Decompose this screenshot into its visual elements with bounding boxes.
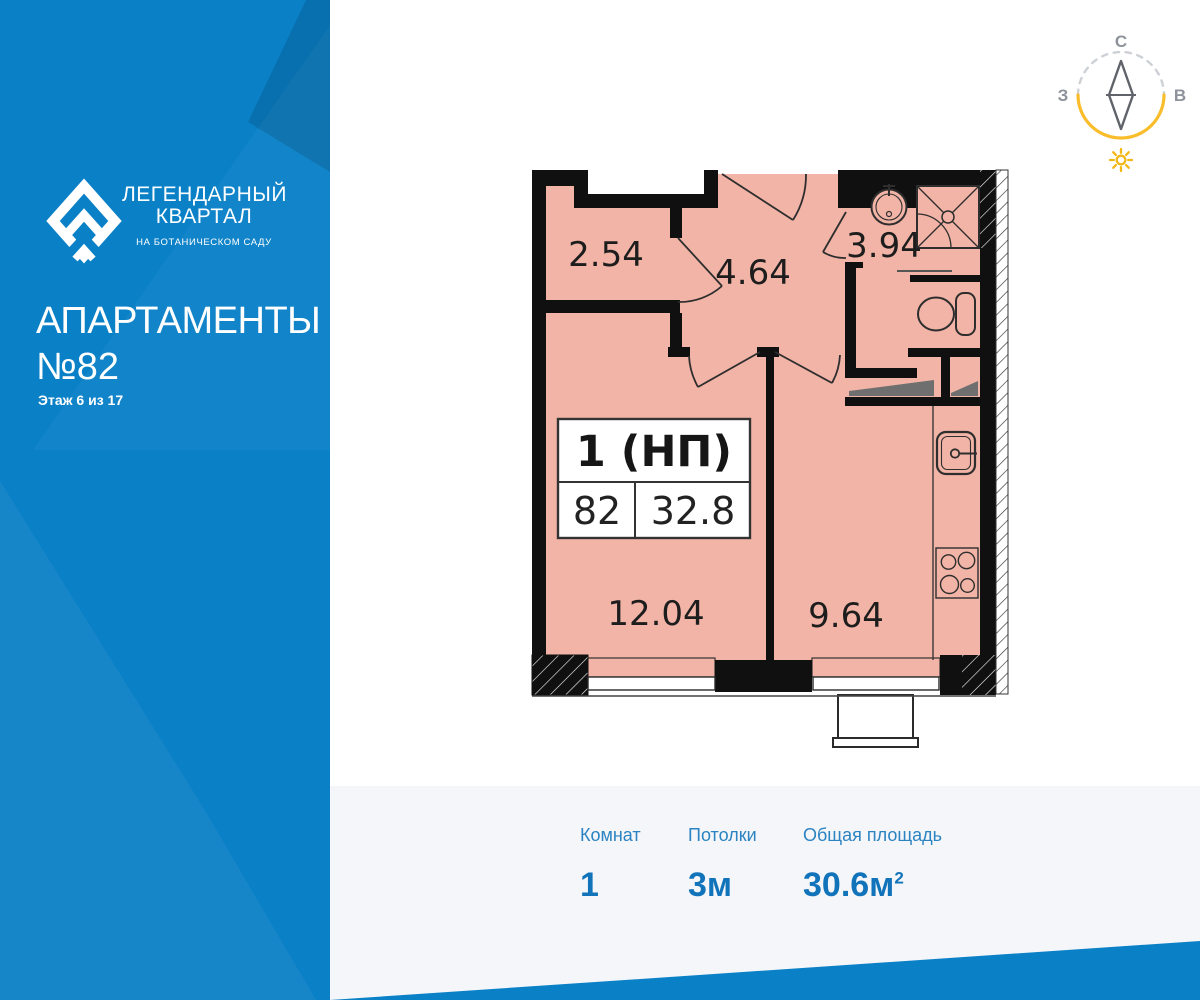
apartment-card-page: ЛЕГЕНДАРНЫЙ КВАРТАЛ НА БОТАНИЧЕСКОМ САДУ… [0,0,1200,1000]
balcony [838,695,913,738]
room-label-living: 12.04 [607,594,704,634]
compass-icon: С З В [1058,32,1186,171]
hatched-corner-top-right [980,170,996,248]
shower-icon [917,186,979,248]
apartment-type: 1 (НП) [576,427,732,477]
compass-north-label: С [1115,32,1127,51]
hatched-corner-right [962,655,996,695]
kitchen-sink-icon [937,432,977,474]
compass-west-label: З [1058,86,1069,105]
floor-plan: 2.54 4.64 3.94 12.04 9.64 1 (НП) 82 32.8 [532,170,1008,747]
sun-icon [1110,149,1132,171]
apartment-info-box: 1 (НП) 82 32.8 [558,419,750,538]
room-label-closet: 2.54 [568,235,644,275]
floor-plan-canvas: 2.54 4.64 3.94 12.04 9.64 1 (НП) 82 32.8… [0,0,1200,1000]
room-label-kitchen: 9.64 [808,596,884,636]
compass-east-label: В [1174,86,1186,105]
room-label-bathroom: 3.94 [846,226,922,266]
hatched-corner-left [532,655,588,695]
hatched-outer-strip [996,170,1008,694]
room-label-hall: 4.64 [715,253,791,293]
apartment-area: 32.8 [651,489,736,533]
apartment-number: 82 [573,489,621,533]
